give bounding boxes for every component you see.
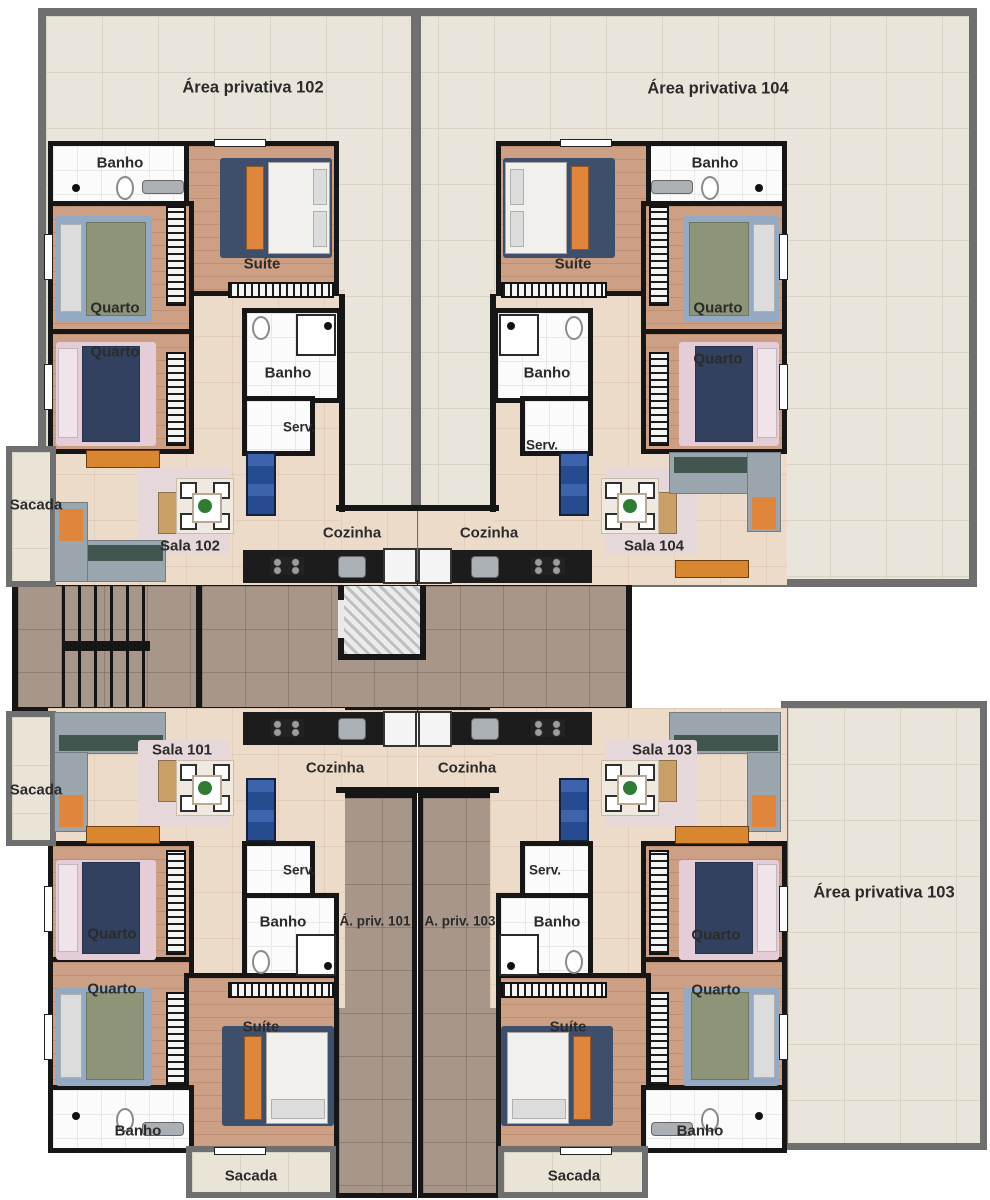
shower-head [507,322,515,330]
toilet [252,316,270,340]
kitchen-sink [338,556,366,578]
label-banho-suite-103: Banho [534,914,581,931]
window [779,886,788,932]
window [560,139,612,147]
sofa [747,752,781,832]
window [560,1147,612,1155]
stove [270,557,304,575]
terrace-divider-wall [411,8,421,587]
label-sala-104: Sala 104 [624,538,684,555]
suite-chest [573,1036,591,1120]
sofa-pillow [752,795,776,827]
wardrobe [166,850,186,955]
washer [559,778,589,842]
fridge [418,548,452,584]
sofa [747,452,781,532]
double-bed [268,162,330,254]
double-bed [266,1032,328,1124]
pillow [753,994,775,1078]
blanket [691,992,749,1080]
window [779,1014,788,1060]
label-serv-103: Serv. [529,863,561,878]
kitchen-counter [448,550,592,583]
shower-head [755,1112,763,1120]
room-banho-104 [641,141,787,209]
kitchen-counter [448,712,592,745]
stove [531,719,565,737]
label-quarto-b-103: Quarto [691,982,740,999]
single-bed [56,860,156,960]
plant [623,781,637,795]
label-serv-102: Serv. [283,420,315,435]
label-banho-101: Banho [115,1123,162,1140]
pillow [757,864,777,952]
elevator-shaft [344,586,420,654]
label-sala-101: Sala 101 [152,742,212,759]
pillow [313,211,327,247]
label-suite-103: Suíte [550,1019,587,1036]
label-sacada-101-bottom: Sacada [225,1168,278,1185]
suite-chest [571,166,589,250]
window [44,234,53,280]
label-suite-101: Suíte [243,1019,280,1036]
label-suite-104: Suíte [555,256,592,273]
kitchen-counter [243,712,387,745]
wardrobe [166,352,186,446]
label-cozinha-101: Cozinha [306,760,364,777]
window [44,886,53,932]
toilet [116,176,134,200]
label-area-privativa-103: Área privativa 103 [813,884,954,903]
shower [499,934,539,976]
label-suite-102: Suíte [244,256,281,273]
shower-head [324,322,332,330]
dining-set [176,478,234,534]
wall-kitchen-101 [336,787,421,793]
stove [531,557,565,575]
window [779,234,788,280]
label-cozinha-104: Cozinha [460,525,518,542]
stairs-landing-wall [62,641,150,651]
elevator [338,580,426,660]
label-sacada-102: Sacada [10,497,63,514]
dresser [86,826,160,844]
wall-kitchen-104 [414,505,499,511]
label-banho-suite-101: Banho [260,914,307,931]
label-quarto-a-103: Quarto [691,927,740,944]
private-strip-101 [334,793,417,1198]
sofa-pillow [59,509,83,541]
washer [246,452,276,516]
label-banho-suite-102: Banho [265,365,312,382]
shower-head [324,962,332,970]
double-bed [505,162,567,254]
window [44,364,53,410]
dining-set [601,478,659,534]
label-quarto-a-104: Quarto [693,300,742,317]
sacada-101 [6,711,56,846]
fridge [383,548,417,584]
label-quarto-a-102: Quarto [90,300,139,317]
kitchen-sink [471,556,499,578]
pillow [271,1099,325,1119]
label-area-privativa-102: Área privativa 102 [182,79,323,98]
pillow [60,994,82,1078]
window [779,364,788,410]
sofa-pillow [59,795,83,827]
pillow [510,211,524,247]
wardrobe [649,206,669,306]
label-banho-suite-104: Banho [524,365,571,382]
label-quarto-b-104: Quarto [693,351,742,368]
pillow [58,864,78,952]
pillow [512,1099,566,1119]
fridge [418,711,452,747]
suite-chest [246,166,264,250]
pillow [753,224,775,312]
dresser [86,450,160,468]
wardrobe [166,206,186,306]
toilet [565,316,583,340]
sacada-102 [6,446,56,587]
label-sala-103: Sala 103 [632,742,692,759]
label-serv-101: Serv. [283,863,315,878]
wardrobe [228,982,334,998]
stove [270,719,304,737]
label-a-priv-101: Á. priv. 101 [339,914,410,929]
kitchen-sink [338,718,366,740]
dining-set [176,760,234,816]
shower-head [507,962,515,970]
label-sala-102: Sala 102 [160,538,220,555]
dresser [675,826,749,844]
pillow [58,348,78,438]
single-bed [56,988,152,1086]
label-cozinha-102: Cozinha [323,525,381,542]
wardrobe [649,992,669,1086]
elevator-door-gap [338,600,344,638]
label-cozinha-103: Cozinha [438,760,496,777]
toilet [565,950,583,974]
label-banho-104: Banho [692,155,739,172]
wardrobe [228,282,334,298]
wardrobe [649,352,669,446]
label-sacada-101: Sacada [10,782,63,799]
shower [499,314,539,356]
wall-kitchen-103 [414,787,499,793]
floor-plan: Área privativa 102 Área privativa 104 Ár… [0,0,990,1200]
fridge [383,711,417,747]
label-area-privativa-104: Área privativa 104 [647,80,788,99]
plant [198,781,212,795]
toilet [701,176,719,200]
label-quarto-a-101: Quarto [87,926,136,943]
label-quarto-b-102: Quarto [90,344,139,361]
bathroom-sink [142,180,184,194]
wardrobe [501,982,607,998]
shower [296,934,336,976]
label-serv-104: Serv. [526,438,558,453]
suite-chest [244,1036,262,1120]
sofa-pillow [752,497,776,529]
wardrobe [166,992,186,1086]
single-bed [683,988,779,1086]
shower-head [755,184,763,192]
label-banho-103: Banho [677,1123,724,1140]
shower-head [72,1112,80,1120]
private-strip-103 [418,793,501,1198]
pillow [313,169,327,205]
washer [246,778,276,842]
dresser [675,560,749,578]
label-a-priv-103: A. priv. 103 [424,914,495,929]
wardrobe [501,282,607,298]
shower-head [72,184,80,192]
pillow [60,224,82,312]
plant [623,499,637,513]
terrace-103 [781,701,987,1150]
wall-kitchen-102 [336,505,421,511]
label-quarto-b-101: Quarto [87,981,136,998]
kitchen-counter [243,550,387,583]
blanket [86,992,144,1080]
pillow [757,348,777,438]
dining-set [601,760,659,816]
wardrobe [649,850,669,955]
window [44,1014,53,1060]
window [214,1147,266,1155]
label-banho-102: Banho [97,155,144,172]
sofa [54,502,88,582]
label-sacada-103-bottom: Sacada [548,1168,601,1185]
pillow [510,169,524,205]
window [214,139,266,147]
washer [559,452,589,516]
kitchen-sink [471,718,499,740]
toilet [252,950,270,974]
shower [296,314,336,356]
double-bed [507,1032,569,1124]
bathroom-sink [651,180,693,194]
plant [198,499,212,513]
single-bed [679,860,779,960]
